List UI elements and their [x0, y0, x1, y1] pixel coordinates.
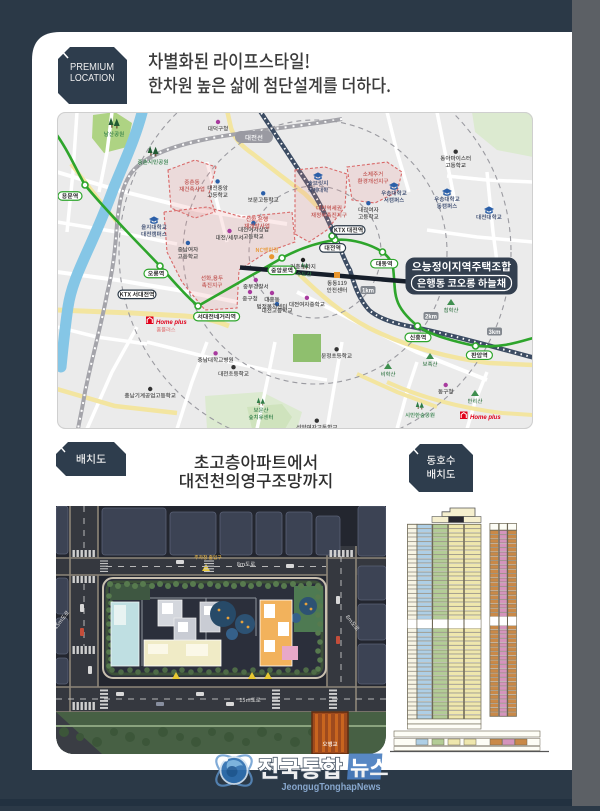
svg-text:LOCATION: LOCATION [70, 73, 115, 84]
svg-text:1km: 1km [362, 288, 374, 294]
svg-text:JeongugTonghapNews: JeongugTonghapNews [282, 781, 381, 793]
svg-text:Home plus: Home plus [470, 415, 501, 421]
svg-text:2km: 2km [425, 314, 437, 320]
svg-text:Home plus: Home plus [156, 320, 187, 326]
svg-text:3km: 3km [488, 330, 500, 336]
svg-text:PREMIUM: PREMIUM [70, 62, 114, 73]
